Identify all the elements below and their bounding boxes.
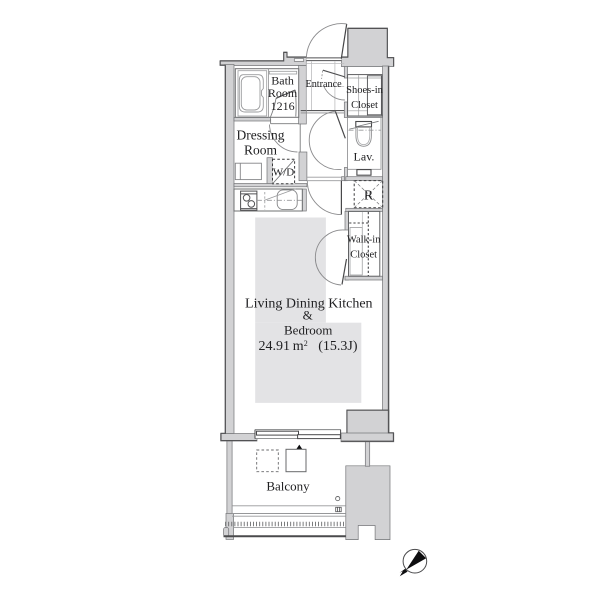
svg-text:Walk-in: Walk-in [347,235,381,246]
svg-text:Dressing: Dressing [237,127,285,142]
svg-text:Closet: Closet [350,249,377,260]
svg-text:Closet: Closet [351,100,378,111]
svg-text:Shoes-in: Shoes-in [346,85,384,96]
svg-text:Room: Room [244,143,278,158]
svg-text:Room: Room [268,86,298,100]
svg-text:&: & [303,307,313,322]
svg-text:Balcony: Balcony [266,479,310,494]
svg-text:Lav.: Lav. [354,150,375,164]
svg-text:W/D: W/D [273,167,294,179]
svg-text:R: R [364,189,374,204]
svg-text:Bedroom: Bedroom [284,322,332,337]
svg-text:24.91 m2 (15.3J): 24.91 m2 (15.3J) [259,339,358,354]
svg-text:1216: 1216 [271,99,295,113]
svg-text:Entrance: Entrance [305,79,342,90]
